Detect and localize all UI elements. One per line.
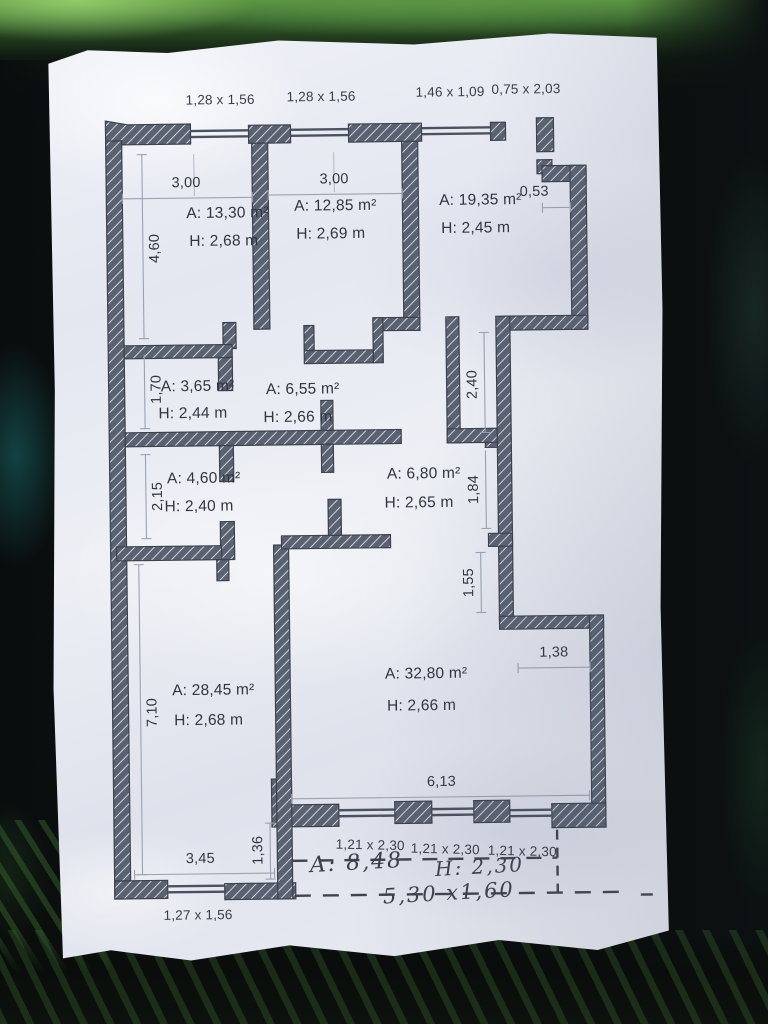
room-area-label: A: 32,80 m² [385, 665, 468, 684]
room-area-label: A: 6,80 m² [387, 465, 461, 484]
dim-step-1-36: 1,36 [250, 836, 266, 865]
room-height-label: H: 2,45 m [441, 219, 510, 238]
room-height-label: H: 2,44 m [158, 405, 227, 424]
room-area-label: A: 19,35 m² [439, 191, 522, 210]
room-height-label: H: 2,66 m [387, 697, 456, 716]
room-area-label: A: 6,55 m² [266, 380, 340, 399]
room-height-label: H: 2,68 m [174, 711, 243, 730]
opening-size-label: 0,75 x 2,03 [491, 81, 560, 97]
dim-niche: 0,53 [520, 184, 549, 200]
opening-size-label: 1,46 x 1,09 [415, 84, 484, 100]
room-area-label: A: 3,65 m² [161, 378, 235, 397]
room-height-label: H: 2,66 m [263, 408, 332, 427]
handwritten-balcony-area: A: 8,48 [309, 848, 404, 878]
room-height-label: H: 2,40 m [164, 498, 233, 517]
opening-size-label: 1,28 x 1,56 [186, 92, 255, 108]
paper-sheet: 1,28 x 1,56 1,28 x 1,56 1,46 x 1,09 0,75… [44, 30, 671, 967]
opening-size-label: 1,28 x 1,56 [286, 89, 355, 105]
room-height-label: H: 2,68 m [189, 232, 258, 251]
window-size-label: 1,27 x 1,56 [163, 907, 232, 923]
floorplan-drawing [44, 30, 667, 965]
dim-left-4-60: 4,60 [147, 234, 163, 263]
dim-room2-width: 3,00 [319, 171, 348, 187]
dim-right-1-55: 1,55 [461, 568, 477, 597]
room-height-label: H: 2,65 m [384, 494, 453, 513]
dim-bottom-3-45: 3,45 [186, 851, 215, 867]
photo-of-floorplan: 1,28 x 1,56 1,28 x 1,56 1,46 x 1,09 0,75… [0, 0, 768, 1024]
dim-bottom-6-13: 6,13 [427, 774, 456, 790]
floorplan-sheet: 1,28 x 1,56 1,28 x 1,56 1,46 x 1,09 0,75… [44, 30, 667, 965]
dim-left-7-10: 7,10 [144, 698, 160, 727]
room-height-label: H: 2,69 m [296, 225, 365, 244]
room-area-label: A: 12,85 m² [294, 197, 377, 216]
room-area-label: A: 13,30 m² [186, 204, 269, 223]
dim-room1-width: 3,00 [172, 175, 201, 191]
dim-right-2-40: 2,40 [464, 370, 480, 399]
dim-right-1-84: 1,84 [466, 475, 482, 504]
room-area-label: A: 4,60 m² [167, 469, 241, 488]
room-area-label: A: 28,45 m² [172, 681, 255, 700]
inner-walls [112, 140, 517, 901]
dim-right-1-38: 1,38 [539, 644, 568, 660]
